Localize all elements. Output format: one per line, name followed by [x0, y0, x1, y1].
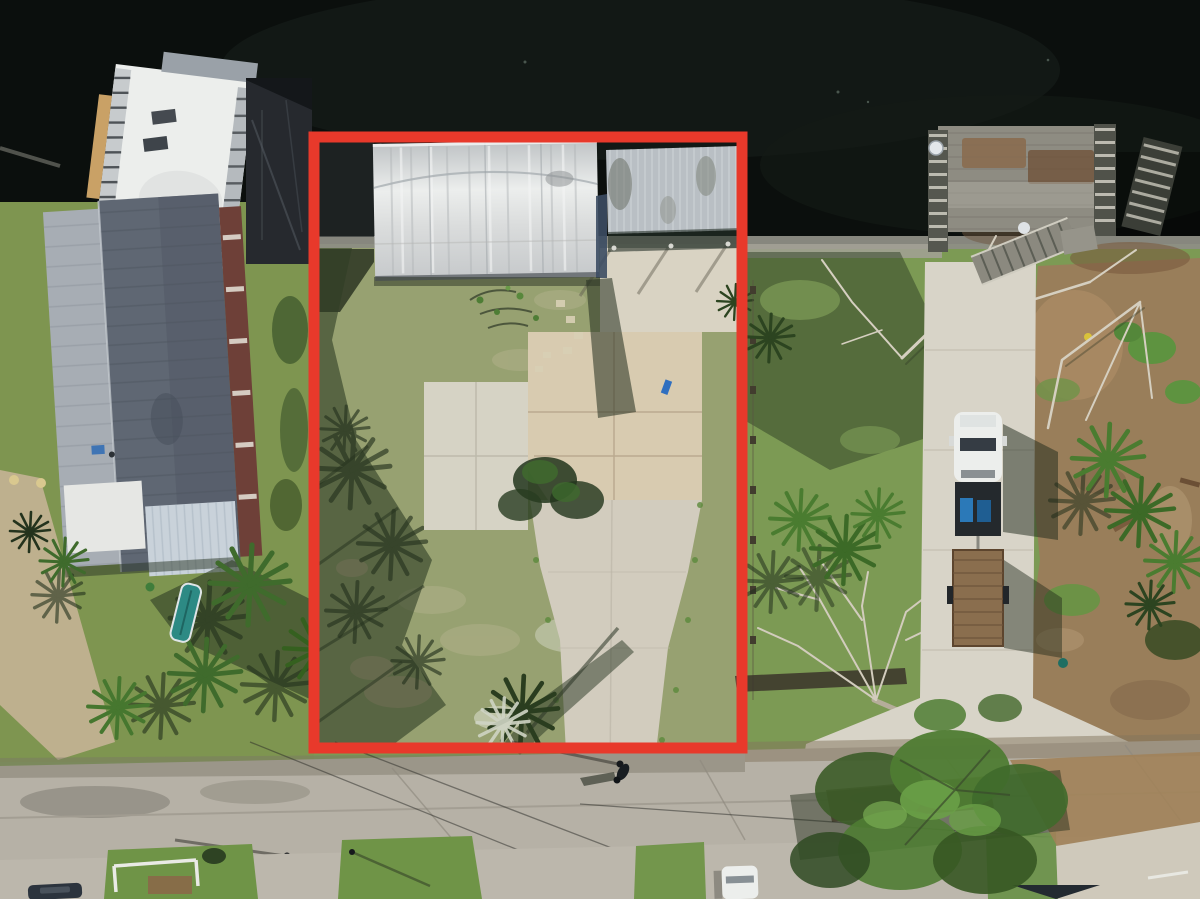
barn-side-gap: [596, 194, 607, 278]
carport-shadow: [608, 228, 742, 252]
shadowed-structure: [246, 78, 312, 264]
deck-damage-patch: [1028, 150, 1094, 184]
deck-damage-patch: [962, 138, 1026, 168]
blue-equipment: [977, 500, 991, 522]
blue-tarp-patch: [91, 445, 105, 455]
dark-car: [28, 883, 83, 899]
bush: [1165, 380, 1200, 404]
outlined-lot: [314, 140, 753, 792]
aerial-photo-canvas: [0, 0, 1200, 899]
stepping-stone: [9, 475, 19, 485]
flatbed-trailer: [947, 550, 1009, 646]
windshield: [960, 438, 996, 451]
metal-barn-building: [373, 140, 599, 281]
front-lawn: [338, 836, 482, 899]
carport-roof: [606, 146, 742, 252]
front-lawn: [634, 842, 706, 899]
carport-pad: [600, 248, 742, 332]
satellite-dish: [1018, 222, 1030, 234]
barrel: [146, 583, 155, 592]
wood-debris: [148, 876, 192, 894]
aerial-photo: [0, 0, 1200, 899]
bin: [1058, 658, 1068, 668]
blue-equipment: [960, 498, 973, 522]
satellite-dish: [929, 141, 943, 155]
left-house: [42, 192, 263, 581]
stepping-stone: [36, 478, 46, 488]
